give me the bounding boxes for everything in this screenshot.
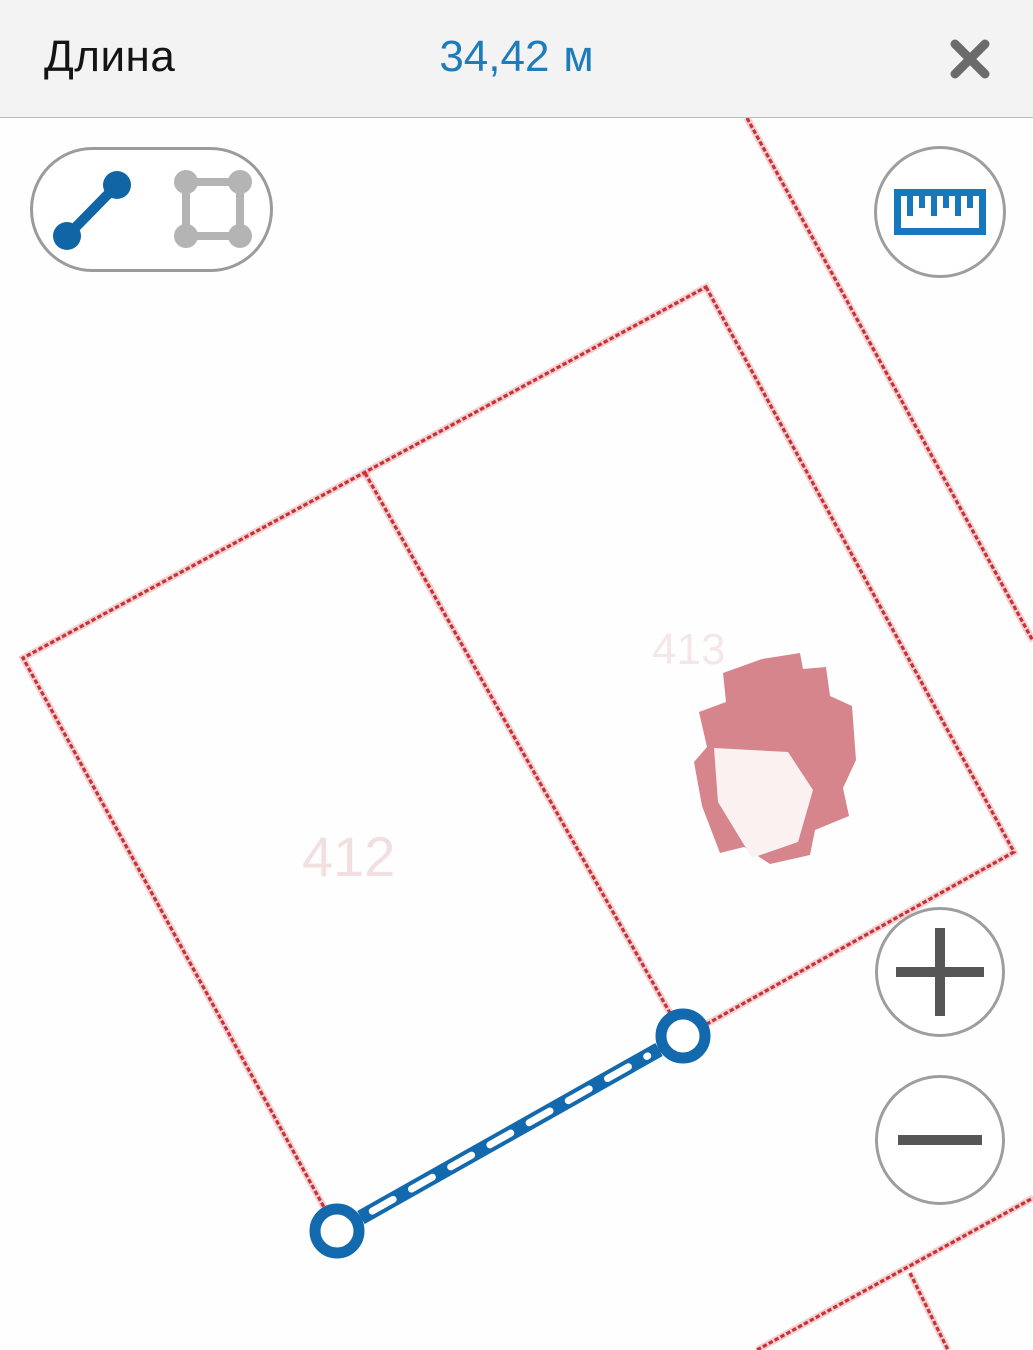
measure-endpoint-end[interactable] <box>661 1014 705 1058</box>
parcel-divider <box>365 473 683 1036</box>
line-tool-button[interactable] <box>43 162 141 257</box>
ruler-icon <box>894 189 986 235</box>
measurement-value: 34,42м <box>0 32 1033 82</box>
area-tool-icon <box>163 162 261 257</box>
line-tool-icon <box>43 162 141 257</box>
measurement-number: 34,42 <box>439 32 549 81</box>
header-bar: Длина 34,42м <box>0 0 1033 118</box>
close-icon <box>947 36 993 82</box>
measure-mode-toggle[interactable] <box>30 147 273 272</box>
plus-icon <box>892 924 988 1020</box>
zoom-in-button[interactable] <box>875 907 1005 1037</box>
area-tool-button[interactable] <box>163 162 261 257</box>
close-button[interactable] <box>935 24 1005 94</box>
faint-parcel-label: 412 <box>302 825 395 888</box>
zoom-out-button[interactable] <box>875 1075 1005 1205</box>
main-parcel-outline <box>23 287 1014 1231</box>
measurement-unit: м <box>563 32 593 81</box>
faint-parcel-label: 413 <box>652 625 725 674</box>
ruler-button[interactable] <box>874 146 1006 278</box>
main-parcel-outline-halo <box>23 287 1014 1231</box>
measure-endpoint-start[interactable] <box>315 1209 359 1253</box>
measure-line-dashes <box>372 1056 647 1211</box>
minus-icon <box>892 1092 988 1188</box>
